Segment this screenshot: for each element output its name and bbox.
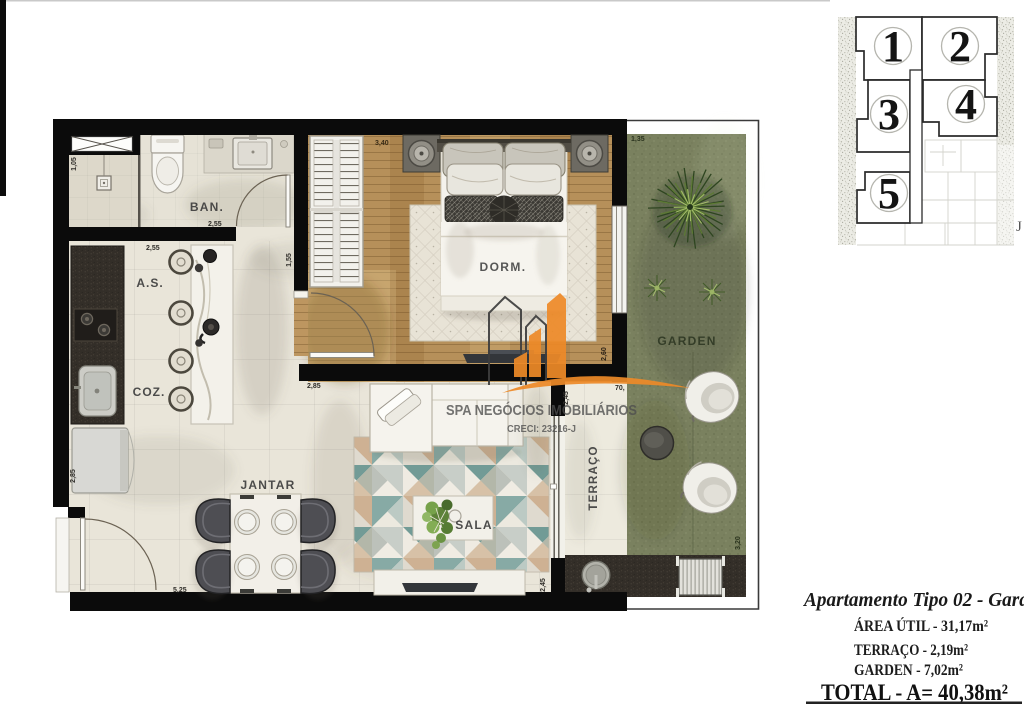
svg-text:GARDEN - 7,02m²: GARDEN - 7,02m² (854, 662, 963, 679)
svg-text:2: 2 (949, 22, 971, 71)
svg-text:DORM.: DORM. (480, 260, 527, 274)
svg-text:BAN.: BAN. (190, 200, 224, 214)
svg-text:Apartamento Tipo 02 - Garagem: Apartamento Tipo 02 - Garagem (802, 589, 1024, 611)
svg-text:2,85: 2,85 (307, 383, 321, 390)
svg-text:1,05: 1,05 (71, 157, 78, 171)
svg-text:3,20: 3,20 (735, 536, 742, 550)
svg-text:3: 3 (878, 90, 900, 139)
svg-text:5: 5 (878, 169, 900, 218)
svg-text:TERRAÇO - 2,19m²: TERRAÇO - 2,19m² (854, 642, 968, 659)
svg-text:JANTAR: JANTAR (241, 478, 296, 492)
svg-text:SALA: SALA (455, 518, 492, 532)
svg-text:4: 4 (955, 80, 977, 129)
svg-text:2,60: 2,60 (601, 347, 608, 361)
svg-text:TOTAL - A= 40,38m²: TOTAL - A= 40,38m² (821, 680, 1008, 704)
svg-text:CRECI: 23216-J: CRECI: 23216-J (507, 424, 576, 435)
svg-text:1,35: 1,35 (631, 136, 645, 143)
svg-text:1,55: 1,55 (286, 253, 293, 267)
svg-text:TERRAÇO: TERRAÇO (588, 445, 600, 510)
svg-text:70,: 70, (615, 385, 625, 392)
svg-text:A.S.: A.S. (136, 276, 163, 290)
svg-text:J: J (1016, 219, 1022, 235)
svg-text:ÁREA ÚTIL - 31,17m²: ÁREA ÚTIL - 31,17m² (854, 616, 988, 635)
svg-text:COZ.: COZ. (133, 385, 166, 399)
svg-text:2,45: 2,45 (540, 578, 547, 592)
svg-text:2,85: 2,85 (70, 469, 77, 483)
svg-text:3,40: 3,40 (375, 140, 389, 147)
svg-text:2,55: 2,55 (208, 221, 222, 228)
svg-text:2,55: 2,55 (146, 245, 160, 252)
svg-text:5,25: 5,25 (173, 587, 187, 594)
svg-text:1: 1 (882, 22, 904, 71)
svg-text:SPA NEGÓCIOS IMOBILIÁRIOS: SPA NEGÓCIOS IMOBILIÁRIOS (446, 401, 637, 419)
svg-text:GARDEN: GARDEN (657, 334, 716, 348)
